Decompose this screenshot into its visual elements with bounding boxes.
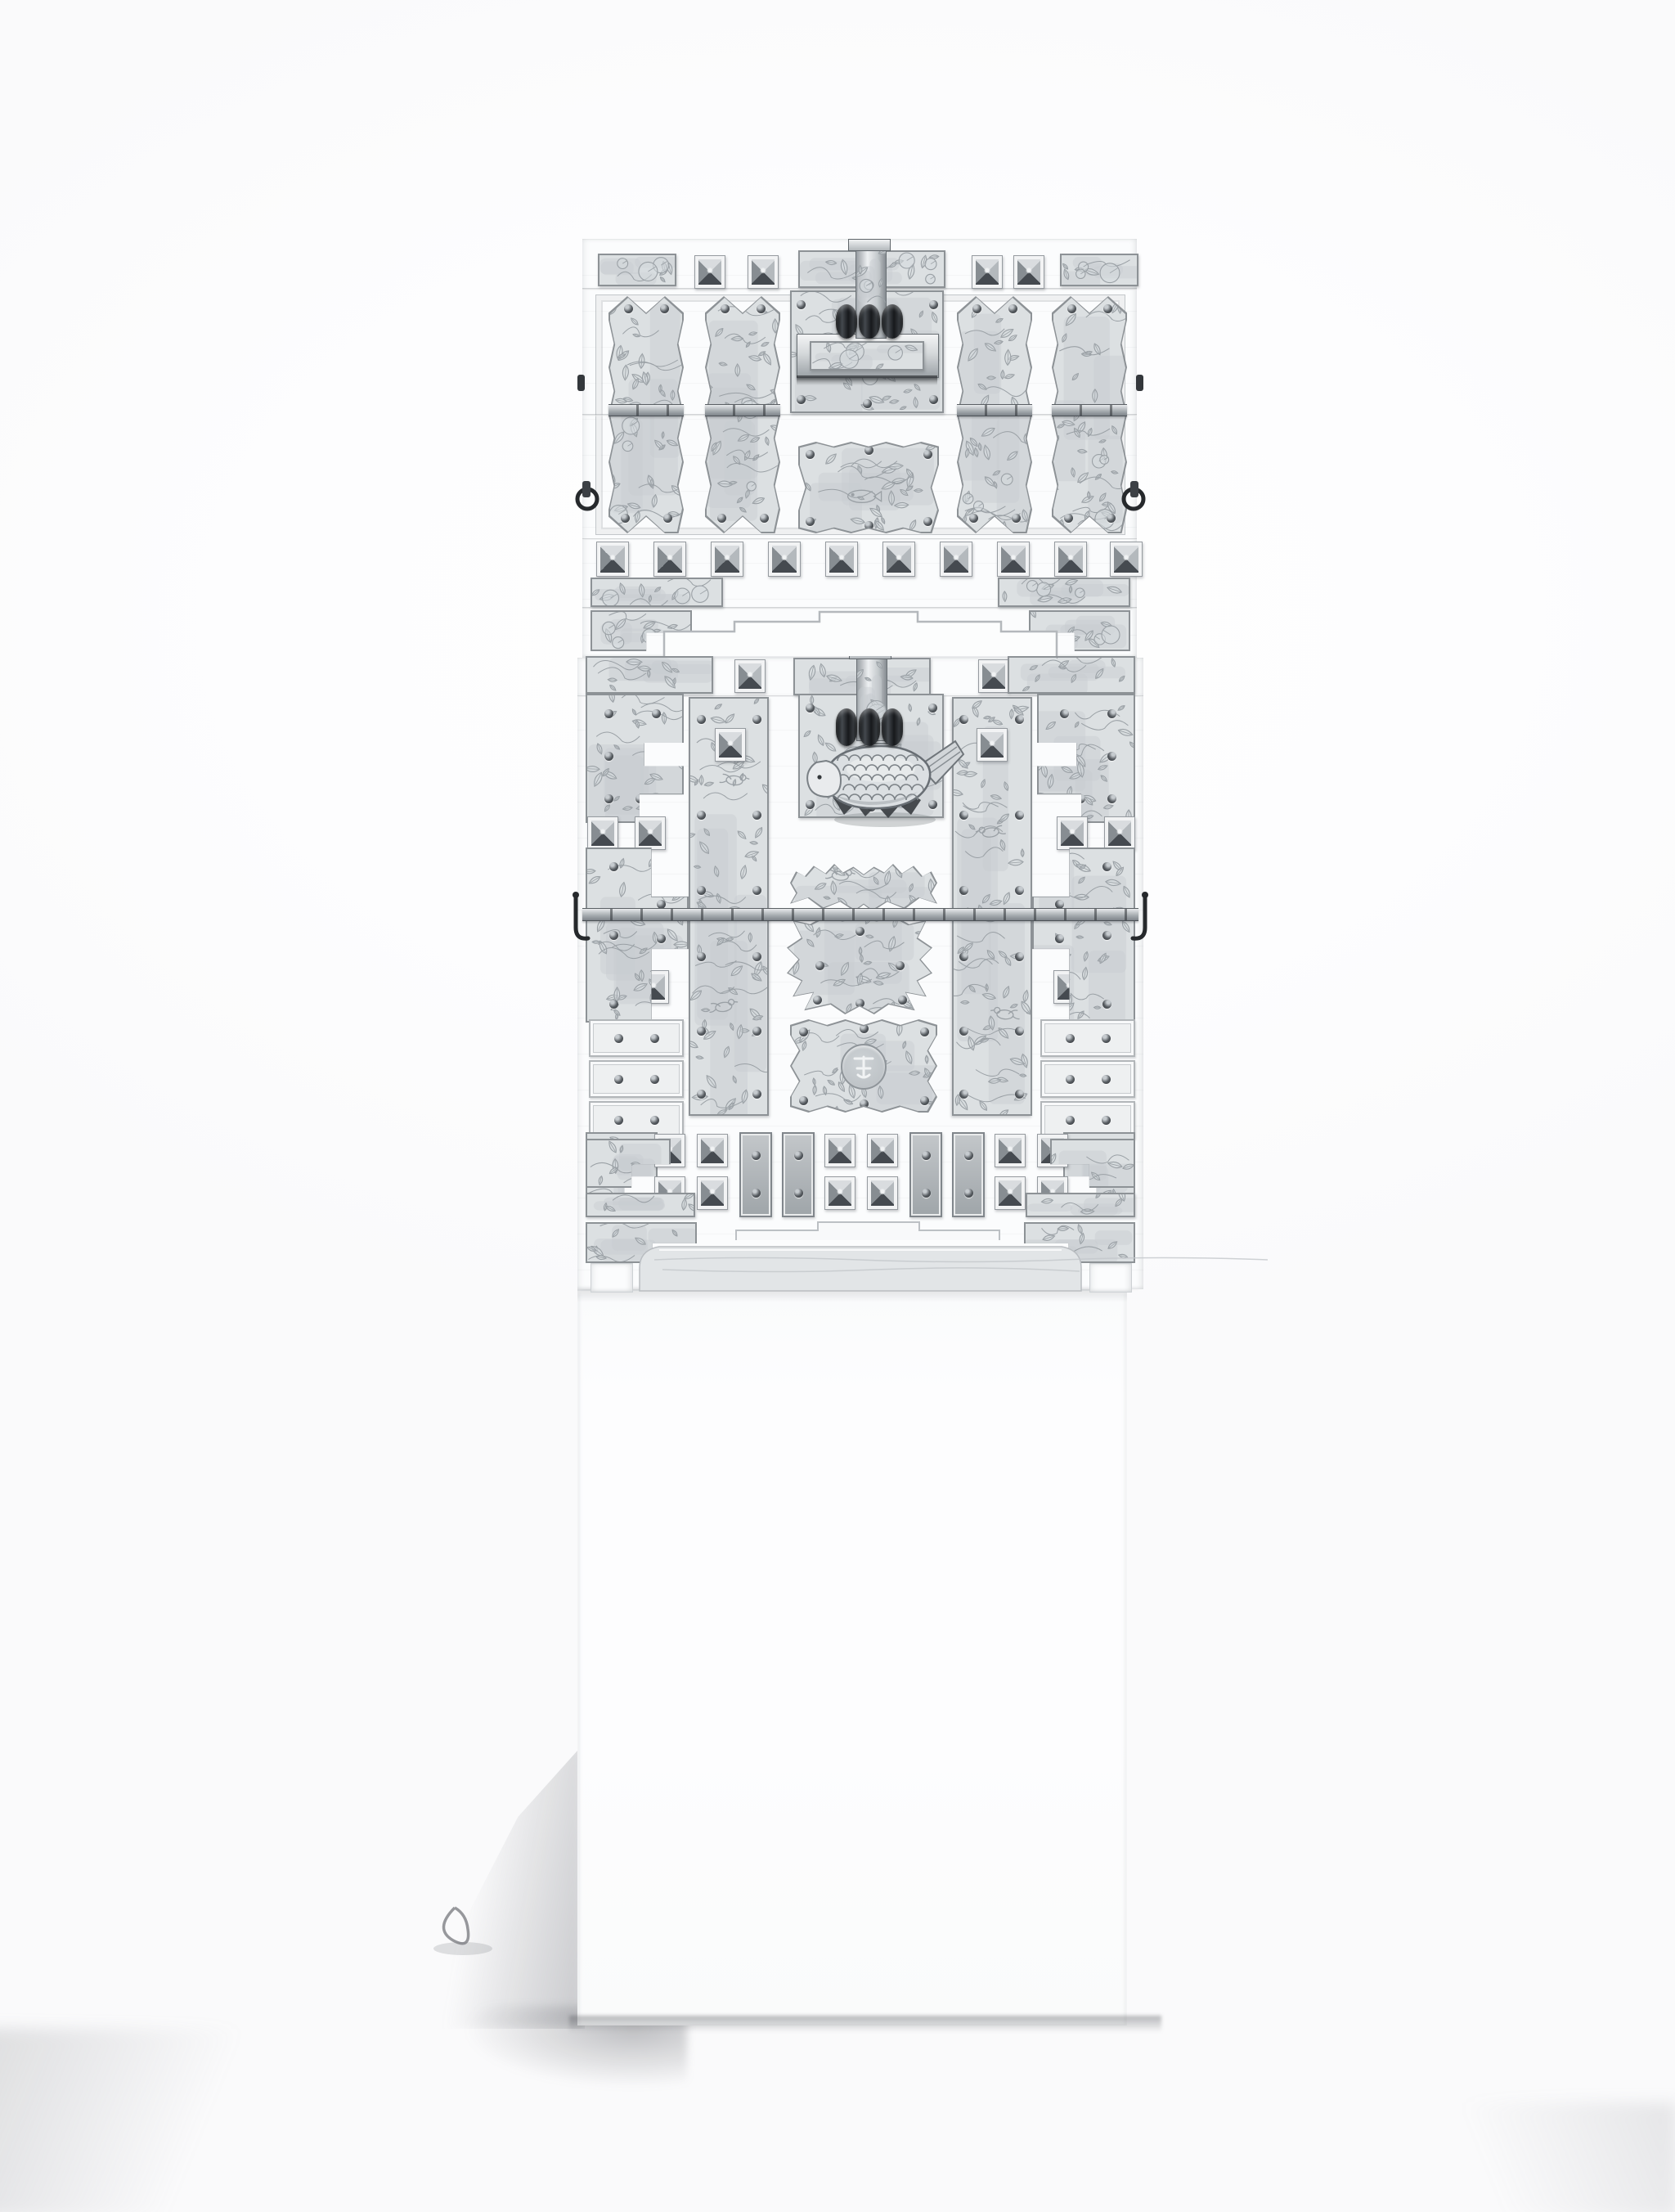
strap-plate-hinge <box>957 404 1032 416</box>
rivet <box>650 1075 659 1084</box>
rivet <box>1066 1034 1075 1043</box>
side-stud <box>715 728 746 762</box>
bottom-row-stud <box>697 1134 728 1167</box>
pedestal-cast-shadow <box>409 1742 585 2029</box>
chest-leg-right <box>1089 1263 1132 1293</box>
lower-rail-plate-left <box>586 656 713 694</box>
rivet <box>752 952 761 961</box>
floor-shadow-left <box>0 2029 409 2212</box>
rivet <box>697 886 706 895</box>
rivet <box>928 800 937 809</box>
waist-plate-right <box>998 578 1130 607</box>
rivet <box>922 1151 931 1160</box>
rivet <box>864 446 873 455</box>
waist-stud-row-stud <box>1054 542 1087 577</box>
floor-crease-shadow <box>443 1908 468 1944</box>
padlock-barrel-knuckle <box>882 708 903 746</box>
rivet <box>621 514 630 523</box>
bottom-row-stud <box>867 1134 898 1167</box>
waist-stud-row-stud <box>997 542 1030 577</box>
rivet <box>797 300 806 309</box>
pyramid-stud-face <box>1114 546 1138 573</box>
rivet <box>1103 304 1112 313</box>
rivet <box>972 304 981 313</box>
pyramid-stud-face <box>1017 259 1040 285</box>
side-stud <box>1057 816 1088 850</box>
rivet <box>609 931 618 940</box>
rivet <box>1107 709 1116 718</box>
rivet <box>1008 304 1017 313</box>
crease-soft-shadow <box>433 1942 492 1955</box>
top-rail-stud <box>972 255 1003 289</box>
rivet <box>1067 304 1076 313</box>
top-rail-stud <box>694 255 725 289</box>
rivet <box>717 514 726 523</box>
rivet <box>614 1116 623 1125</box>
waist-plate-left-face <box>592 579 721 605</box>
waist-stud-row-stud <box>882 542 915 577</box>
pyramid-stud-face <box>829 1138 851 1163</box>
upper-pond-plate <box>798 442 939 533</box>
rivet <box>614 1075 623 1084</box>
rivet <box>898 996 907 1005</box>
pyramid-stud-face <box>752 259 775 285</box>
edge-pin-right <box>1136 375 1143 391</box>
upper-pond-plate-face <box>800 443 937 532</box>
side-rivet-plate <box>589 1019 684 1057</box>
top-rail-plate-left <box>598 254 676 286</box>
rivet <box>959 886 968 895</box>
rivet <box>806 704 815 713</box>
rivet <box>752 1151 761 1160</box>
leg-strip-plate-left <box>586 1193 695 1217</box>
rivet <box>964 1189 973 1198</box>
pyramid-stud-face <box>981 732 1004 758</box>
pyramid-stud-face <box>1061 821 1084 846</box>
waist-stud-row-stud <box>940 542 972 577</box>
lower-rail-plate-right <box>1008 656 1135 694</box>
side-stud <box>587 816 618 850</box>
rivet <box>652 709 661 718</box>
photograph-scene <box>0 0 1675 2212</box>
pyramid-stud-face <box>698 259 721 285</box>
strap-plate-hinge <box>608 404 684 416</box>
rivet <box>1064 514 1073 523</box>
rivet <box>721 304 730 313</box>
rivet <box>863 399 872 408</box>
leg-strip-plate-right-face <box>1027 1194 1134 1216</box>
top-rail-plate-left-face <box>599 255 675 285</box>
rivet <box>860 1024 869 1033</box>
pyramid-stud-face <box>591 821 614 846</box>
pyramid-stud-face <box>871 1180 894 1206</box>
floor-shadow-right <box>1325 2102 1675 2212</box>
bottom-row-stud <box>697 1176 728 1210</box>
pyramid-stud-face <box>719 732 742 758</box>
waist-plate-right-face <box>999 579 1129 605</box>
side-stud <box>977 728 1008 762</box>
upper-hasp-cap <box>848 239 891 251</box>
pyramid-stud-face <box>999 1180 1022 1206</box>
rivet <box>964 1151 973 1160</box>
rivet <box>813 996 822 1005</box>
rivet <box>1066 1116 1075 1125</box>
display-pedestal <box>577 1289 1127 2025</box>
waist-stud-row-stud <box>1110 542 1143 577</box>
pyramid-stud-face <box>887 546 911 573</box>
pyramid-stud-face <box>944 546 968 573</box>
pyramid-stud-face <box>739 663 761 689</box>
pyramid-stud-face <box>871 1138 894 1163</box>
pyramid-stud-face <box>600 546 625 573</box>
rivet <box>794 1189 803 1198</box>
fortune-medallion-disc <box>841 1044 887 1090</box>
rivet <box>922 1189 931 1198</box>
rivet <box>1102 1075 1111 1084</box>
rivet <box>806 517 815 526</box>
strap-plate-hinge <box>1052 404 1127 416</box>
lock-barrel-knuckle <box>859 304 880 339</box>
rivet <box>752 886 761 895</box>
upper-lock-bar-inset-face <box>811 343 923 369</box>
pyramid-stud-face <box>976 259 999 285</box>
top-rail-stud <box>1013 255 1044 289</box>
bottom-row-slat <box>782 1132 815 1217</box>
side-rivet-plate <box>1040 1019 1135 1057</box>
chest-leg-left <box>591 1263 633 1293</box>
rivet <box>969 514 978 523</box>
rivet <box>1055 934 1064 943</box>
rivet <box>929 300 938 309</box>
rivet <box>799 1096 808 1105</box>
lower-hasp-cap <box>849 648 891 659</box>
strap-plate-hinge <box>705 404 780 416</box>
pyramid-stud-face <box>829 546 854 573</box>
lower-rail-stud <box>978 659 1009 693</box>
side-stud <box>635 816 666 850</box>
waist-stud-row-stud <box>711 542 743 577</box>
bottom-row-stud <box>824 1134 855 1167</box>
rivet <box>757 304 766 313</box>
bottom-row-slat <box>739 1132 772 1217</box>
upper-lock-bar-inset <box>810 341 924 371</box>
bottom-row-slat <box>909 1132 942 1217</box>
lower-rail-stud <box>734 659 766 693</box>
pyramid-stud-face <box>999 1138 1022 1163</box>
rivet <box>794 1151 803 1160</box>
top-rail-stud <box>748 255 779 289</box>
lock-barrel-knuckle <box>882 304 903 339</box>
rivet <box>604 752 613 761</box>
waist-stud-row-stud <box>768 542 801 577</box>
rivet <box>609 862 618 871</box>
lower-hinge-bar <box>582 908 1138 921</box>
rivet <box>920 1096 929 1105</box>
pyramid-stud-face <box>639 821 662 846</box>
rivet <box>650 1034 659 1043</box>
leg-strip-plate-left-face <box>587 1194 694 1216</box>
bottom-row-stud <box>995 1134 1026 1167</box>
waist-stud-row-stud <box>653 542 686 577</box>
rivet <box>604 794 613 803</box>
rivet <box>959 1090 968 1099</box>
rivet <box>609 1000 618 1009</box>
rivet <box>1015 811 1024 820</box>
pyramid-stud-face <box>1058 546 1083 573</box>
waist-stud-row-stud <box>596 542 629 577</box>
top-rail-plate-right-face <box>1062 255 1137 285</box>
pyramid-stud-face <box>982 663 1005 689</box>
side-rivet-plate <box>589 1060 684 1098</box>
rivet <box>1102 1116 1111 1125</box>
pyramid-stud-face <box>1108 821 1131 846</box>
lower-rail-plate-left-face <box>587 658 712 692</box>
pyramid-stud-face <box>701 1180 724 1206</box>
rivet <box>1102 1034 1111 1043</box>
rivet <box>604 709 613 718</box>
leg-strip-plate-right <box>1026 1193 1135 1217</box>
rivet <box>1015 886 1024 895</box>
lock-barrel-knuckle <box>836 304 857 339</box>
rivet <box>1015 1090 1024 1099</box>
pyramid-stud-face <box>701 1138 724 1163</box>
rivet <box>896 961 905 970</box>
side-rivet-plate <box>1040 1060 1135 1098</box>
rivet <box>1060 709 1069 718</box>
pyramid-stud-face <box>1001 546 1026 573</box>
rivet <box>1015 952 1024 961</box>
rivet <box>1066 1075 1075 1084</box>
pyramid-stud-face <box>829 1180 851 1206</box>
rivet <box>752 811 761 820</box>
rivet <box>624 304 633 313</box>
rivet <box>928 704 937 713</box>
padlock-barrel-knuckle <box>859 708 880 746</box>
bottom-row-stud <box>867 1176 898 1210</box>
pyramid-stud-face <box>772 546 797 573</box>
padlock-barrel-knuckle <box>836 708 857 746</box>
rivet <box>697 1090 706 1099</box>
top-rail-plate-right <box>1060 254 1138 286</box>
bottom-row-slat <box>952 1132 985 1217</box>
rivet <box>614 1034 623 1043</box>
rivet <box>650 1116 659 1125</box>
bottom-row-stud <box>824 1176 855 1210</box>
waist-plate-left <box>591 578 723 607</box>
bottom-row-stud <box>995 1176 1026 1210</box>
rivet <box>806 450 815 459</box>
lower-rail-plate-right-face <box>1009 658 1134 692</box>
side-stud <box>1104 816 1135 850</box>
rivet <box>752 1090 761 1099</box>
rivet <box>752 1189 761 1198</box>
waist-stud-row-stud <box>825 542 858 577</box>
rivet <box>660 304 669 313</box>
pyramid-stud-face <box>658 546 682 573</box>
pyramid-stud-face <box>715 546 739 573</box>
